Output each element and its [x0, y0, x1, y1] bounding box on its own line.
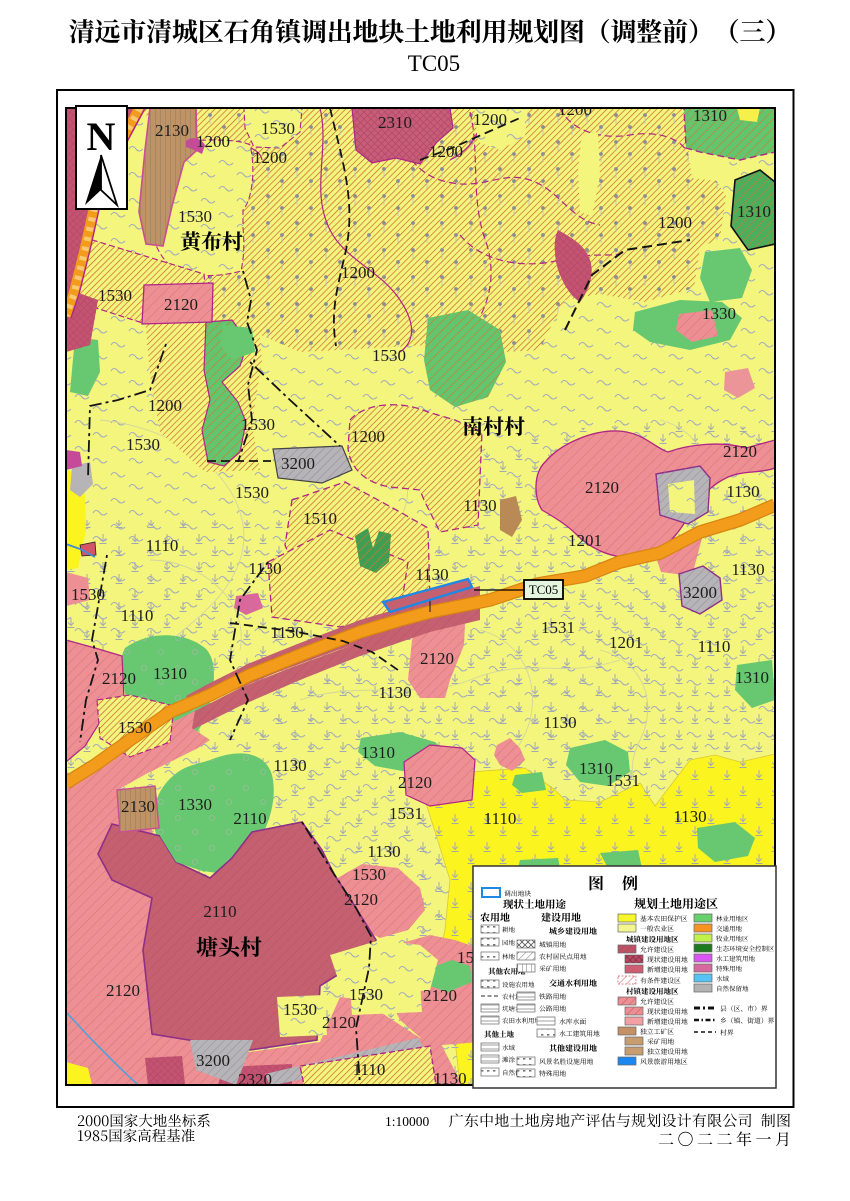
svg-text:1310: 1310 — [737, 202, 771, 221]
svg-text:3200: 3200 — [196, 1051, 230, 1070]
svg-text:2120: 2120 — [106, 981, 140, 1000]
svg-text:1530: 1530 — [283, 1000, 317, 1019]
svg-text:2120: 2120 — [322, 1013, 356, 1032]
svg-text:1510: 1510 — [303, 509, 337, 528]
svg-text:1130: 1130 — [726, 482, 759, 501]
svg-text:1110: 1110 — [353, 1060, 386, 1079]
svg-text:1531: 1531 — [606, 771, 640, 790]
svg-text:2120: 2120 — [164, 295, 198, 314]
svg-text:2120: 2120 — [723, 442, 757, 461]
svg-text:1530: 1530 — [261, 119, 295, 138]
svg-text:1130: 1130 — [463, 496, 496, 515]
svg-text:2130: 2130 — [121, 797, 155, 816]
svg-text:1530: 1530 — [372, 346, 406, 365]
svg-text:1110: 1110 — [146, 536, 179, 555]
svg-text:1200: 1200 — [429, 142, 463, 161]
svg-text:1130: 1130 — [673, 807, 706, 826]
svg-text:2310: 2310 — [378, 113, 412, 132]
svg-text:1531: 1531 — [389, 804, 423, 823]
svg-text:1310: 1310 — [361, 743, 395, 762]
svg-text:3200: 3200 — [683, 583, 717, 602]
svg-text:1531: 1531 — [541, 618, 575, 637]
svg-text:2110: 2110 — [203, 902, 236, 921]
svg-text:2120: 2120 — [344, 890, 378, 909]
svg-text:1310: 1310 — [153, 664, 187, 683]
svg-text:1200: 1200 — [196, 132, 230, 151]
svg-text:1200: 1200 — [341, 263, 375, 282]
svg-text:1530: 1530 — [126, 435, 160, 454]
svg-text:2130: 2130 — [155, 121, 189, 140]
svg-text:3200: 3200 — [281, 454, 315, 473]
svg-text:1200: 1200 — [351, 427, 385, 446]
svg-text:TC05: TC05 — [408, 51, 460, 76]
svg-text:1530: 1530 — [178, 207, 212, 226]
svg-text:1530: 1530 — [118, 718, 152, 737]
svg-text:1130: 1130 — [731, 560, 764, 579]
svg-text:1130: 1130 — [367, 842, 400, 861]
svg-text:1200: 1200 — [148, 396, 182, 415]
svg-text:1530: 1530 — [352, 865, 386, 884]
svg-text:1110: 1110 — [698, 637, 731, 656]
svg-text:2120: 2120 — [585, 478, 619, 497]
svg-text:1530: 1530 — [235, 483, 269, 502]
svg-text:1200: 1200 — [253, 148, 287, 167]
svg-text:2120: 2120 — [102, 669, 136, 688]
svg-text:2110: 2110 — [233, 809, 266, 828]
svg-text:2120: 2120 — [423, 986, 457, 1005]
svg-text:1530: 1530 — [98, 286, 132, 305]
svg-text:1530: 1530 — [71, 585, 105, 604]
svg-text:1130: 1130 — [378, 683, 411, 702]
svg-text:1201: 1201 — [609, 633, 643, 652]
svg-text:1330: 1330 — [702, 304, 736, 323]
svg-text:1130: 1130 — [248, 559, 281, 578]
svg-text:2120: 2120 — [398, 773, 432, 792]
svg-text:2120: 2120 — [420, 649, 454, 668]
svg-text:1330: 1330 — [178, 795, 212, 814]
svg-text:1201: 1201 — [568, 531, 602, 550]
svg-text:1530: 1530 — [241, 415, 275, 434]
svg-text:TC05: TC05 — [529, 582, 559, 597]
svg-text:1110: 1110 — [484, 809, 517, 828]
svg-text:1130: 1130 — [543, 713, 576, 732]
svg-text:1200: 1200 — [658, 213, 692, 232]
svg-text:1130: 1130 — [415, 565, 448, 584]
svg-text:1130: 1130 — [270, 623, 303, 642]
svg-text:1530: 1530 — [349, 985, 383, 1004]
svg-text:1310: 1310 — [735, 668, 769, 687]
svg-text:1:10000: 1:10000 — [385, 1114, 430, 1129]
svg-text:1110: 1110 — [121, 606, 154, 625]
svg-text:1130: 1130 — [273, 756, 306, 775]
svg-text:1200: 1200 — [473, 110, 507, 129]
svg-text:N: N — [87, 114, 116, 159]
